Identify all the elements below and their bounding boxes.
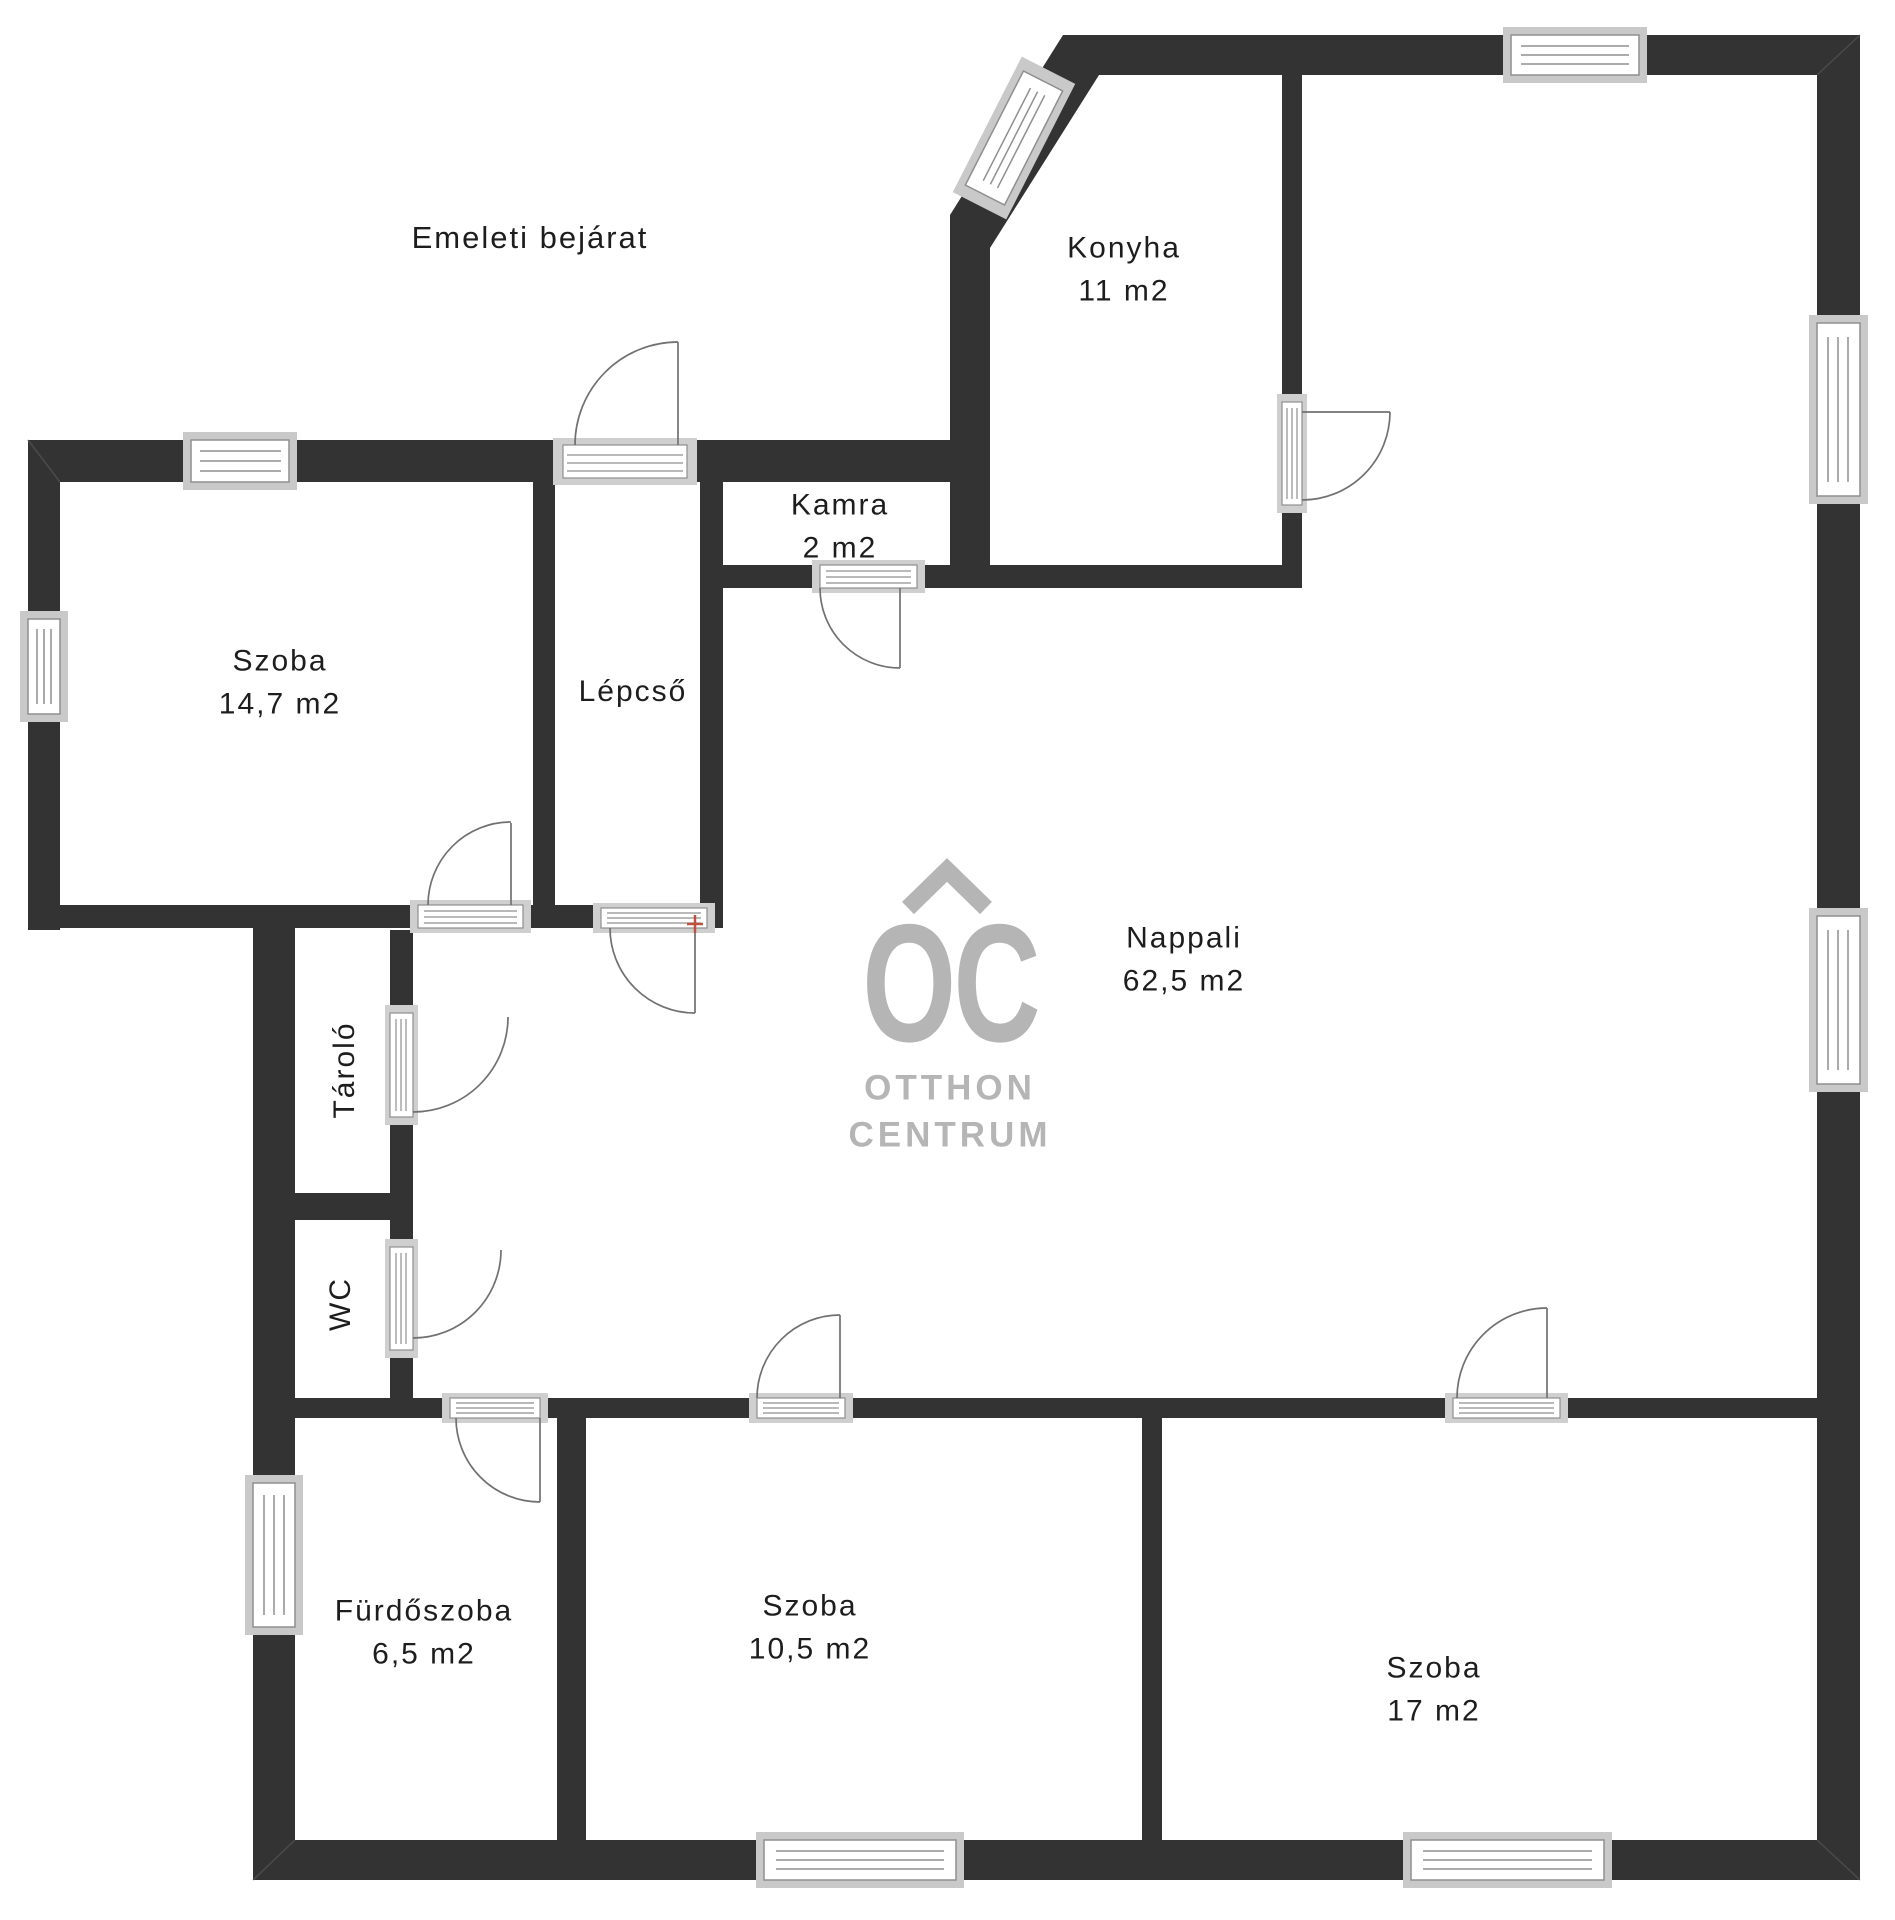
wall-upperleft-c — [687, 440, 990, 482]
room-name: Szoba — [762, 1590, 857, 1623]
door-szoba-right — [1457, 1308, 1547, 1398]
window-szoba-left — [20, 611, 68, 722]
room-label-szoba-right: Szoba 17 m2 — [1386, 1652, 1481, 1729]
room-name: Szoba — [1386, 1652, 1481, 1685]
room-label-nappali: Nappali 62,5 m2 — [1123, 922, 1245, 999]
wall-tarolo-right-b — [390, 1117, 413, 1247]
door-kamra — [820, 588, 900, 668]
door-lepcso — [610, 928, 695, 1013]
door-wc — [413, 1250, 501, 1338]
window-right-upper — [1809, 315, 1868, 504]
door-szoba-left — [428, 822, 511, 905]
room-area: 11 m2 — [1067, 275, 1181, 309]
window-right-lower — [1809, 908, 1868, 1092]
wall-kitchen-right-b — [1282, 505, 1302, 588]
wall-kitchen-left — [950, 215, 990, 588]
door-tarolo — [413, 1017, 508, 1112]
room-name: Fürdőszoba — [335, 1595, 513, 1628]
watermark-line1: OTTHON — [864, 1071, 1036, 1106]
wall-upperleft-b — [297, 440, 563, 482]
room-name: Nappali — [1126, 922, 1242, 955]
room-name: Konyha — [1067, 232, 1181, 265]
wall-bottom-a — [253, 1840, 756, 1880]
wall-lepcso-left — [533, 482, 555, 908]
wall-right-c — [1817, 1090, 1860, 1840]
wall-lepcso-right — [700, 482, 723, 928]
window-szoba-top — [183, 432, 297, 490]
room-label-wc: WC — [324, 1277, 358, 1331]
wall-nappali-bottom-c — [853, 1398, 1445, 1418]
wall-szoba-bottom-a — [28, 905, 410, 928]
entrance-annotation: Emeleti bejárat — [412, 220, 649, 256]
room-name: Kamra — [791, 489, 889, 522]
wall-left-upper-b — [28, 720, 60, 930]
wall-bottom-b — [964, 1840, 1403, 1880]
threshold-lepcso — [593, 903, 715, 933]
floorplan: Emeleti bejárat Szoba 14,7 m2 Lépcső Kam… — [0, 0, 1895, 1920]
room-label-konyha: Konyha 11 m2 — [1067, 232, 1181, 309]
window-bottom-middle — [756, 1832, 964, 1888]
room-area: 10,5 m2 — [749, 1633, 871, 1667]
watermark-monogram: OC — [862, 899, 1038, 1067]
watermark-line2: CENTRUM — [849, 1118, 1052, 1153]
window-bottom-right — [1403, 1832, 1612, 1888]
room-label-lepcso: Lépcső — [579, 675, 688, 709]
wall-right-b — [1817, 502, 1860, 910]
room-label-furdoszoba: Fürdőszoba 6,5 m2 — [335, 1595, 513, 1672]
window-furdo-left — [245, 1475, 303, 1635]
wall-right-a — [1817, 35, 1860, 317]
threshold-wc — [385, 1239, 418, 1358]
wall-top-left-segment — [1063, 35, 1505, 75]
room-name: Szoba — [232, 645, 327, 678]
entrance-steps — [553, 438, 697, 485]
wall-left-lower-a — [253, 905, 295, 1477]
threshold-furdo — [442, 1393, 548, 1423]
wall-kitchen-right-a — [1282, 75, 1302, 402]
threshold-szoba-middle — [749, 1393, 853, 1423]
door-furdo — [456, 1418, 540, 1502]
room-label-szoba-middle: Szoba 10,5 m2 — [749, 1590, 871, 1667]
room-area: 6,5 m2 — [335, 1638, 513, 1672]
wall-bottomrooms-divider — [1142, 1418, 1162, 1840]
room-area: 2 m2 — [791, 532, 889, 566]
wall-tarolo-wc-divider — [295, 1193, 390, 1220]
room-name: Lépcső — [579, 675, 688, 708]
window-top — [1503, 27, 1647, 83]
wall-left-lower-b — [253, 1633, 295, 1880]
room-area: 17 m2 — [1386, 1695, 1481, 1729]
threshold-tarolo — [385, 1005, 418, 1125]
room-area: 62,5 m2 — [1123, 965, 1245, 999]
wall-tarolo-right-a — [390, 930, 413, 1013]
threshold-szoba-right — [1445, 1393, 1568, 1423]
room-area: 14,7 m2 — [219, 688, 341, 722]
wall-furdo-right — [557, 1418, 586, 1840]
wall-kamra-bottom-a — [723, 565, 820, 588]
wall-nappali-bottom-a — [295, 1398, 442, 1418]
wall-szoba-bottom-b — [523, 905, 601, 928]
wall-nappali-bottom-d — [1568, 1398, 1817, 1418]
room-label-tarolo: Tároló — [328, 1021, 362, 1118]
room-label-kamra: Kamra 2 m2 — [791, 489, 889, 566]
door-entrance — [575, 342, 678, 445]
door-szoba-middle — [757, 1315, 840, 1398]
wall-nappali-bottom-b — [548, 1398, 749, 1418]
door-konyha — [1302, 412, 1390, 500]
room-label-szoba-left: Szoba 14,7 m2 — [219, 645, 341, 722]
wall-left-upper-a — [28, 440, 60, 613]
